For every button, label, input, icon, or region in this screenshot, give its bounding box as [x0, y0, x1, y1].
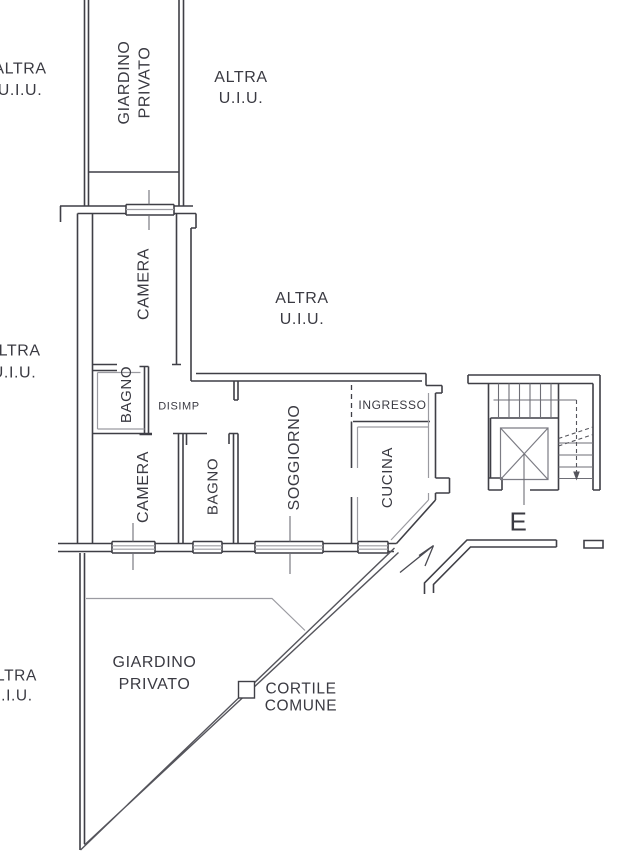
label-giardino-privato-bottom-line2: PRIVATO	[119, 676, 191, 693]
labels-layer: ALTRAU.I.U.GIARDINOPRIVATOALTRAU.I.U.CAM…	[0, 41, 527, 715]
label-giardino-privato-bottom-line1: GIARDINO	[113, 654, 197, 671]
label-soggiorno: SOGGIORNO	[286, 405, 303, 511]
floor-plan-svg: ALTRAU.I.U.GIARDINOPRIVATOALTRAU.I.U.CAM…	[0, 0, 626, 863]
label-cucina: CUCINA	[379, 447, 396, 508]
label-ingresso: INGRESSO	[358, 398, 426, 412]
label-altra-uiu-center-line1: ALTRA	[275, 290, 328, 307]
label-giardino-privato-top-line1: GIARDINO	[116, 41, 133, 125]
label-altra-uiu-top-right-line2: U.I.U.	[219, 90, 264, 107]
label-stairs-e: E	[510, 507, 528, 537]
label-altra-uiu-bottom-left-line2: U.I.U.	[0, 688, 33, 705]
label-altra-uiu-top-right-line1: ALTRA	[214, 69, 267, 86]
walls-top-exterior	[60, 206, 196, 222]
stairwell	[468, 375, 600, 505]
walls-garden-strip	[85, 0, 184, 206]
windows-bottom	[112, 516, 388, 574]
label-giardino-privato-top-line2: PRIVATO	[137, 47, 154, 119]
label-altra-uiu-top-left-line1: ALTRA	[0, 61, 47, 78]
courtyard-walls	[425, 540, 604, 594]
floorplan-canvas: ALTRAU.I.U.GIARDINOPRIVATOALTRAU.I.U.CAM…	[0, 0, 626, 863]
label-altra-uiu-mid-left-line1: ALTRA	[0, 343, 41, 360]
label-camera-top: CAMERA	[136, 248, 153, 320]
label-cortile-comune-line2: COMUNE	[265, 698, 338, 715]
fence-diagonal	[81, 548, 399, 850]
gate-marker	[239, 682, 255, 699]
label-altra-uiu-top-left-line2: U.I.U.	[0, 82, 42, 99]
label-altra-uiu-mid-left-line2: U.I.U.	[0, 365, 36, 382]
window-top	[126, 190, 174, 230]
label-cortile-comune-line1: CORTILE	[265, 681, 336, 698]
garden-boundary	[80, 548, 399, 850]
label-disimp: DISIMP	[158, 401, 200, 413]
label-camera-bottom: CAMERA	[135, 451, 152, 523]
label-altra-uiu-bottom-left-line1: ALTRA	[0, 668, 37, 685]
label-bagno-bottom: BAGNO	[205, 458, 222, 515]
elevator	[501, 428, 549, 505]
entrance-arrow	[400, 546, 434, 573]
label-bagno-top: BAGNO	[118, 366, 135, 423]
stair-treads	[494, 384, 594, 479]
label-altra-uiu-center-line2: U.I.U.	[280, 311, 325, 328]
